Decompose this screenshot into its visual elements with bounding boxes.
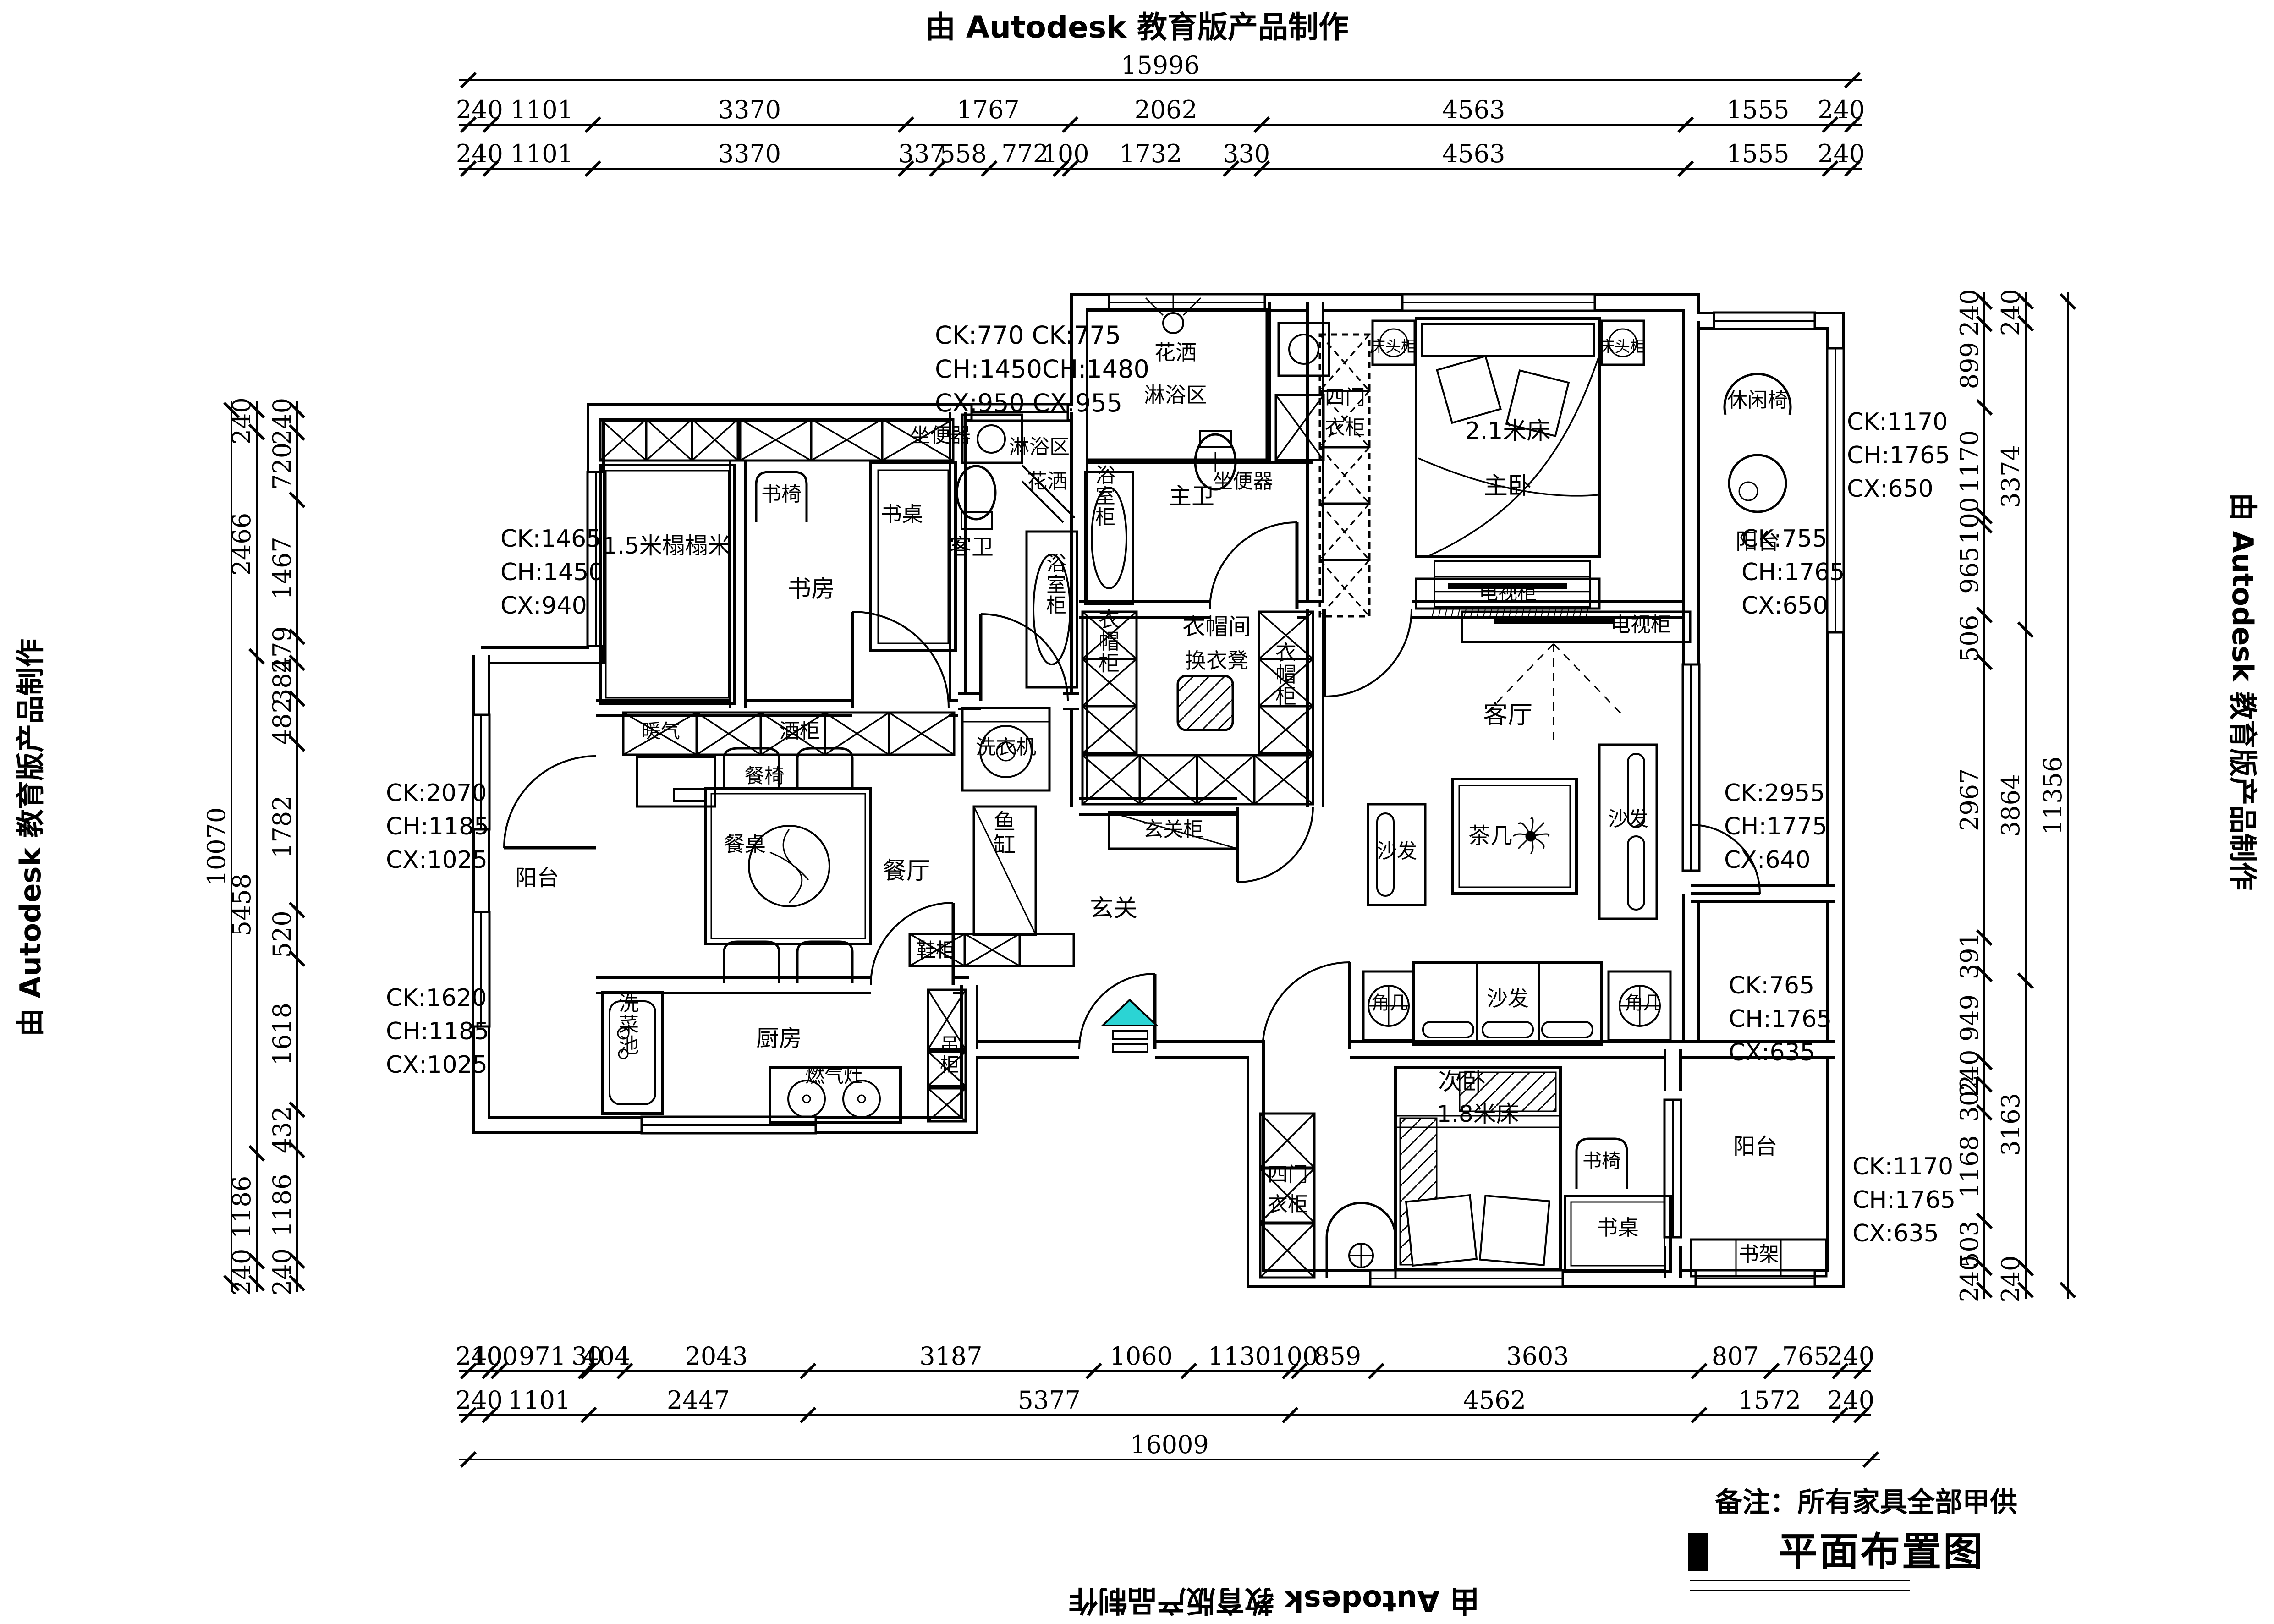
desk-1-shape xyxy=(871,463,956,651)
window xyxy=(1370,1270,1563,1287)
dim-value: 1130 xyxy=(1208,1342,1271,1371)
sched-b3: CX:650 xyxy=(1847,475,1933,503)
dining-chair: 餐椅 xyxy=(744,764,785,788)
dim-value: 240 xyxy=(268,398,297,445)
dim-value: 240 xyxy=(456,139,503,168)
gas-stove: 燃气灶 xyxy=(805,1064,863,1087)
study-door xyxy=(852,612,949,708)
sched-c3: CX:650 xyxy=(1741,592,1828,620)
second-bedroom-door xyxy=(1263,962,1350,1049)
shower-area-master: 淋浴区 xyxy=(1144,383,1207,407)
master-bath: 主卫 xyxy=(1169,483,1214,510)
pillow xyxy=(1437,356,1501,423)
dim-value: 1168 xyxy=(1955,1135,1984,1198)
dim-value: 240 xyxy=(1996,1256,2025,1303)
shoe-cabinet-cell xyxy=(965,934,1020,966)
master-wardrobe-cell xyxy=(1320,560,1369,616)
sched-e2: CH:1765 xyxy=(1729,1005,1832,1033)
desk-1-inner xyxy=(878,470,948,643)
dim-value: 1101 xyxy=(508,1386,571,1415)
dim-value: 4563 xyxy=(1442,139,1505,168)
dining-table-shape xyxy=(706,788,871,944)
dim-left_mid: 240246654581186240 xyxy=(227,397,264,1295)
dim-bottom_overall: 16009 xyxy=(459,1430,1880,1467)
dim-value: 1467 xyxy=(268,537,297,599)
desk-chair-1: 书椅 xyxy=(761,483,802,506)
sched-g1: CK:2070 xyxy=(386,779,487,807)
second-bedroom: 次卧 xyxy=(1438,1068,1486,1096)
dim-value: 240 xyxy=(1996,289,2025,336)
dim-value: 3374 xyxy=(1996,445,2025,508)
dim-value: 240 xyxy=(1818,139,1865,168)
dining-table-inner xyxy=(711,794,865,938)
wardrobe-4door-upper-b: 衣柜 xyxy=(1325,416,1365,439)
lounge-chair: 休闲椅 xyxy=(1727,389,1788,412)
dim-value: 11356 xyxy=(2038,757,2067,835)
window xyxy=(642,1117,816,1133)
dim-value: 2043 xyxy=(685,1342,748,1371)
sched-i1: CK:1465 xyxy=(500,525,601,553)
dim-bottom_row2: 24011012447537745621572240 xyxy=(456,1386,1874,1422)
tea-table: 茶几 xyxy=(1468,823,1512,849)
sched-f2: CH:1765 xyxy=(1852,1186,1955,1214)
sched-d3: CX:640 xyxy=(1724,846,1811,874)
sofa-right: 沙发 xyxy=(1608,807,1648,831)
sched-b1: CK:1170 xyxy=(1847,408,1948,436)
window xyxy=(473,715,489,829)
bed-second: 1.8米床 xyxy=(1437,1101,1519,1127)
balcony-lower-right: 阳台 xyxy=(1733,1134,1777,1159)
dim-value: 384 xyxy=(268,657,297,704)
dim-value: 482 xyxy=(268,697,297,745)
wine-cabinet: 酒柜 xyxy=(780,719,820,743)
tv-cabinet-living: 电视柜 xyxy=(1610,613,1671,636)
wine-cabinet-cell xyxy=(889,713,954,755)
shower-head-master: 花洒 xyxy=(1154,340,1197,365)
balcony-table xyxy=(1729,455,1786,512)
dim-value: 1732 xyxy=(1119,139,1182,168)
balcony-left: 阳台 xyxy=(515,865,559,891)
dining-room: 餐厅 xyxy=(883,857,930,885)
master-bedroom: 主卧 xyxy=(1484,472,1532,500)
dim-value: 1572 xyxy=(1738,1386,1801,1415)
wc-guest-schedule-2: CH:1450CH:1480 xyxy=(935,355,1149,384)
shower-area-guest: 淋浴区 xyxy=(1009,435,1070,459)
dim-value: 240 xyxy=(1827,1386,1874,1415)
dim-right_overall: 11356 xyxy=(2038,292,2075,1299)
radiator-box xyxy=(637,757,715,807)
dim-value: 3370 xyxy=(718,139,781,168)
toilet-master: 坐便器 xyxy=(1213,470,1273,493)
window xyxy=(1683,664,1699,871)
guest-bath: 客卫 xyxy=(950,534,994,560)
dim-value: 1186 xyxy=(268,1174,297,1237)
dim-value: 506 xyxy=(1955,615,1984,662)
cloakroom-door xyxy=(1237,807,1313,882)
study-top-cabinet xyxy=(600,419,646,461)
cloak-cabinet-bottom-cell xyxy=(1140,755,1197,804)
sched-h3: CX:1025 xyxy=(386,1051,488,1079)
windows xyxy=(473,294,1844,1287)
dim-value: 240 xyxy=(1955,1255,1984,1302)
sched-e3: CX:635 xyxy=(1729,1039,1815,1066)
entry-arrow-triangle xyxy=(1103,1000,1157,1026)
dim-value: 2967 xyxy=(1955,768,1984,831)
window xyxy=(1696,1270,1815,1287)
dim-value: 240 xyxy=(1955,289,1984,336)
entry-arrow-bar xyxy=(1113,1031,1148,1039)
window xyxy=(1714,313,1815,329)
bookshelf: 书架 xyxy=(1739,1243,1779,1266)
sched-h1: CK:1620 xyxy=(386,984,487,1012)
dim-value: 965 xyxy=(1955,547,1984,594)
dim-value: 949 xyxy=(1955,994,1984,1042)
dim-value: 720 xyxy=(268,443,297,490)
dim-value: 899 xyxy=(1955,342,1984,389)
dim-value: 240 xyxy=(1818,95,1865,124)
cloak-cabinet-bottom-cell xyxy=(1082,755,1140,804)
cloak-cabinet-bottom-cell xyxy=(1197,755,1254,804)
pillow xyxy=(1480,1196,1549,1265)
dim-value: 3187 xyxy=(919,1342,982,1371)
dim-value: 5377 xyxy=(1017,1386,1080,1415)
dim-value: 971 xyxy=(519,1342,566,1371)
sched-f3: CX:635 xyxy=(1852,1220,1939,1247)
dim-value: 3603 xyxy=(1506,1342,1569,1371)
sched-h2: CH:1185 xyxy=(386,1018,489,1045)
wardrobe-4door-lower-a: 四门 xyxy=(1268,1163,1308,1186)
dim-value: 404 xyxy=(583,1342,630,1371)
burner-center xyxy=(803,1095,810,1103)
sofa-left: 沙发 xyxy=(1377,839,1417,863)
master-wardrobe-cell xyxy=(1320,335,1369,391)
living-room: 客厅 xyxy=(1483,700,1532,729)
dim-value: 10070 xyxy=(202,807,231,886)
tv-living xyxy=(1494,616,1613,624)
sched-i2: CH:1450 xyxy=(500,559,604,586)
dim-value: 1101 xyxy=(511,139,573,168)
desk-1: 书桌 xyxy=(881,502,923,527)
dim-value: 1060 xyxy=(1110,1342,1173,1371)
dim-value: 859 xyxy=(1314,1342,1361,1371)
desk-2: 书桌 xyxy=(1597,1215,1639,1240)
cloak-cabinet-bottom-cell xyxy=(1254,755,1313,804)
second-wardrobe-cell xyxy=(1260,1114,1314,1168)
dim-value: 240 xyxy=(456,95,503,124)
dim-value: 3370 xyxy=(718,95,781,124)
dim-value: 100 xyxy=(1955,497,1984,544)
shower-head-master-shape xyxy=(1163,313,1183,333)
wardrobe-4door-lower-b: 衣柜 xyxy=(1268,1193,1308,1216)
balcony-left-door xyxy=(504,756,596,848)
dim-bottom_row1: 2401009713040420433187106011301008593603… xyxy=(456,1342,1874,1378)
dim-value: 1618 xyxy=(268,1003,297,1065)
wardrobe-4door-upper-a: 四门 xyxy=(1325,386,1365,409)
sched-g2: CH:1185 xyxy=(386,813,489,840)
kitchen: 厨房 xyxy=(756,1025,802,1052)
dim-value: 2447 xyxy=(667,1386,730,1415)
toilet-guest: 坐便器 xyxy=(910,424,971,447)
dim-value: 16009 xyxy=(1130,1430,1209,1459)
shoe-cabinet-cell-plain xyxy=(1020,934,1074,966)
dim-top_row2: 2401101337033755877210017323304563155524… xyxy=(456,139,1865,176)
dim-value: 240 xyxy=(456,1386,503,1415)
master-bedroom-door xyxy=(1324,609,1412,697)
dim-left_inner: 2407201467279384482178252016184321186240 xyxy=(268,398,304,1295)
dining-table: 餐桌 xyxy=(724,832,766,856)
nightstand-1: 床头柜 xyxy=(1370,338,1417,356)
cloak-cabinet-right-cell xyxy=(1259,706,1313,753)
desk-chair-2: 书椅 xyxy=(1582,1150,1621,1172)
dim-value: 765 xyxy=(1782,1342,1829,1371)
hanging-cabinet: 吊柜 xyxy=(940,1034,959,1076)
sink-kitchen: 洗菜池 xyxy=(619,992,639,1058)
corner-table-2: 角几 xyxy=(1625,993,1661,1014)
floor-plan-page: { "page": {"bg": "#ffffff", "line_color"… xyxy=(0,0,2274,1608)
dim-value: 330 xyxy=(1223,139,1270,168)
dim-value: 302 xyxy=(1955,1075,1984,1122)
dim-value: 1555 xyxy=(1726,95,1789,124)
tv-cabinet-master: 电视柜 xyxy=(1479,582,1537,604)
dressing-stool: 换衣凳 xyxy=(1185,648,1248,673)
dim-value: 432 xyxy=(268,1106,297,1153)
cloak-cabinet-left-cell xyxy=(1082,706,1137,753)
tatami: 1.5米榻榻米 xyxy=(603,532,731,559)
dressing-stool-shape xyxy=(1178,676,1233,730)
dim-value: 1782 xyxy=(268,796,297,858)
sched-f1: CK:1170 xyxy=(1852,1153,1953,1180)
dim-value: 2062 xyxy=(1134,95,1197,124)
dim-right_inner: 2408991170100965506296739194924030211685… xyxy=(1955,289,1992,1302)
study-top-cabinet xyxy=(811,419,882,461)
study-room: 书房 xyxy=(787,576,835,603)
dim-value: 4563 xyxy=(1442,95,1505,124)
shoe-cabinet: 鞋柜 xyxy=(917,939,955,961)
window xyxy=(1827,348,1844,632)
study-top-cabinet xyxy=(646,419,692,461)
fish-tank: 鱼缸 xyxy=(994,809,1016,858)
master-wardrobe-cell xyxy=(1320,447,1369,504)
dim-value: 391 xyxy=(1955,932,1984,979)
dim-value: 100 xyxy=(1042,139,1089,168)
entry-hall: 玄关 xyxy=(1090,895,1137,922)
cloakroom: 衣帽间 xyxy=(1182,614,1251,640)
dim-value: 337 xyxy=(898,139,945,168)
master-wardrobe-cell xyxy=(1320,504,1369,560)
bed-master: 2.1米床 xyxy=(1465,417,1551,445)
dim-value: 1170 xyxy=(1955,430,1984,493)
cloak-cabinet-left: 衣帽柜 xyxy=(1099,607,1120,676)
guest-basin xyxy=(978,425,1005,453)
flower-center xyxy=(1526,832,1535,841)
washing-machine: 洗衣机 xyxy=(976,735,1036,759)
sched-c1: CK:755 xyxy=(1741,525,1827,553)
wc-guest-schedule-1: CK:770 CK:775 xyxy=(935,321,1121,350)
dim-value: 1101 xyxy=(511,95,573,124)
dim-value: 100 xyxy=(471,1342,518,1371)
dim-value: 15996 xyxy=(1121,51,1200,80)
sched-e1: CK:765 xyxy=(1729,972,1814,999)
dim-value: 100 xyxy=(1271,1342,1318,1371)
dim-value: 240 xyxy=(268,1248,297,1295)
sched-g3: CX:1025 xyxy=(386,846,488,874)
dim-value: 240 xyxy=(1827,1342,1874,1371)
cloak-cabinet-right: 衣帽柜 xyxy=(1275,640,1296,709)
entry-cabinet: 玄关柜 xyxy=(1143,818,1203,841)
sched-c2: CH:1765 xyxy=(1741,559,1845,586)
tatami-mat xyxy=(600,465,734,703)
sched-b2: CH:1765 xyxy=(1847,442,1950,469)
dim-top_overall: 15996 xyxy=(459,51,1862,88)
vanity-guest: 浴室柜 xyxy=(1046,552,1066,618)
floor-plan-canvas: 1599624011013370176720624563155524024011… xyxy=(0,0,2274,1608)
master-bath-door xyxy=(1210,522,1297,609)
study-top-cabinet xyxy=(692,419,738,461)
vanity-master: 浴室柜 xyxy=(1095,464,1115,529)
sched-d2: CH:1775 xyxy=(1724,813,1827,840)
window xyxy=(1402,294,1595,311)
shower-head-guest: 花洒 xyxy=(1027,470,1067,493)
sched-i3: CX:940 xyxy=(500,592,587,620)
sofa-bottom: 沙发 xyxy=(1487,986,1529,1011)
dim-value: 1555 xyxy=(1726,139,1789,168)
sched-d1: CK:2955 xyxy=(1724,779,1825,807)
dim-value: 3163 xyxy=(1996,1093,2025,1156)
radiator: 暖气 xyxy=(642,720,680,742)
window xyxy=(1664,1100,1681,1237)
dim-right_mid: 240337438643163240 xyxy=(1996,289,2033,1303)
nightstand-2: 床头柜 xyxy=(1599,338,1646,356)
dim-value: 558 xyxy=(939,139,987,168)
dim-value: 3864 xyxy=(1996,774,2025,837)
radiator-vent xyxy=(674,789,706,801)
entry-arrow-bar xyxy=(1113,1044,1148,1052)
pillow xyxy=(1406,1195,1477,1266)
dim-value: 1767 xyxy=(956,95,1019,124)
wc-guest-schedule-3: CX:950 CX:955 xyxy=(935,389,1122,417)
dim-value: 807 xyxy=(1712,1342,1759,1371)
balcony-cup xyxy=(1739,482,1758,500)
tatami-mat-inner xyxy=(606,471,729,698)
dim-value: 520 xyxy=(268,911,297,958)
dim-value: 4562 xyxy=(1463,1386,1526,1415)
entry-arrow xyxy=(1103,1000,1157,1052)
study-top-cabinet xyxy=(740,419,811,461)
bed-master-headboard xyxy=(1422,324,1594,356)
dim-top_row1: 240110133701767206245631555240 xyxy=(456,95,1865,132)
corner-table-1: 角几 xyxy=(1371,993,1408,1014)
burner-center xyxy=(858,1095,865,1103)
